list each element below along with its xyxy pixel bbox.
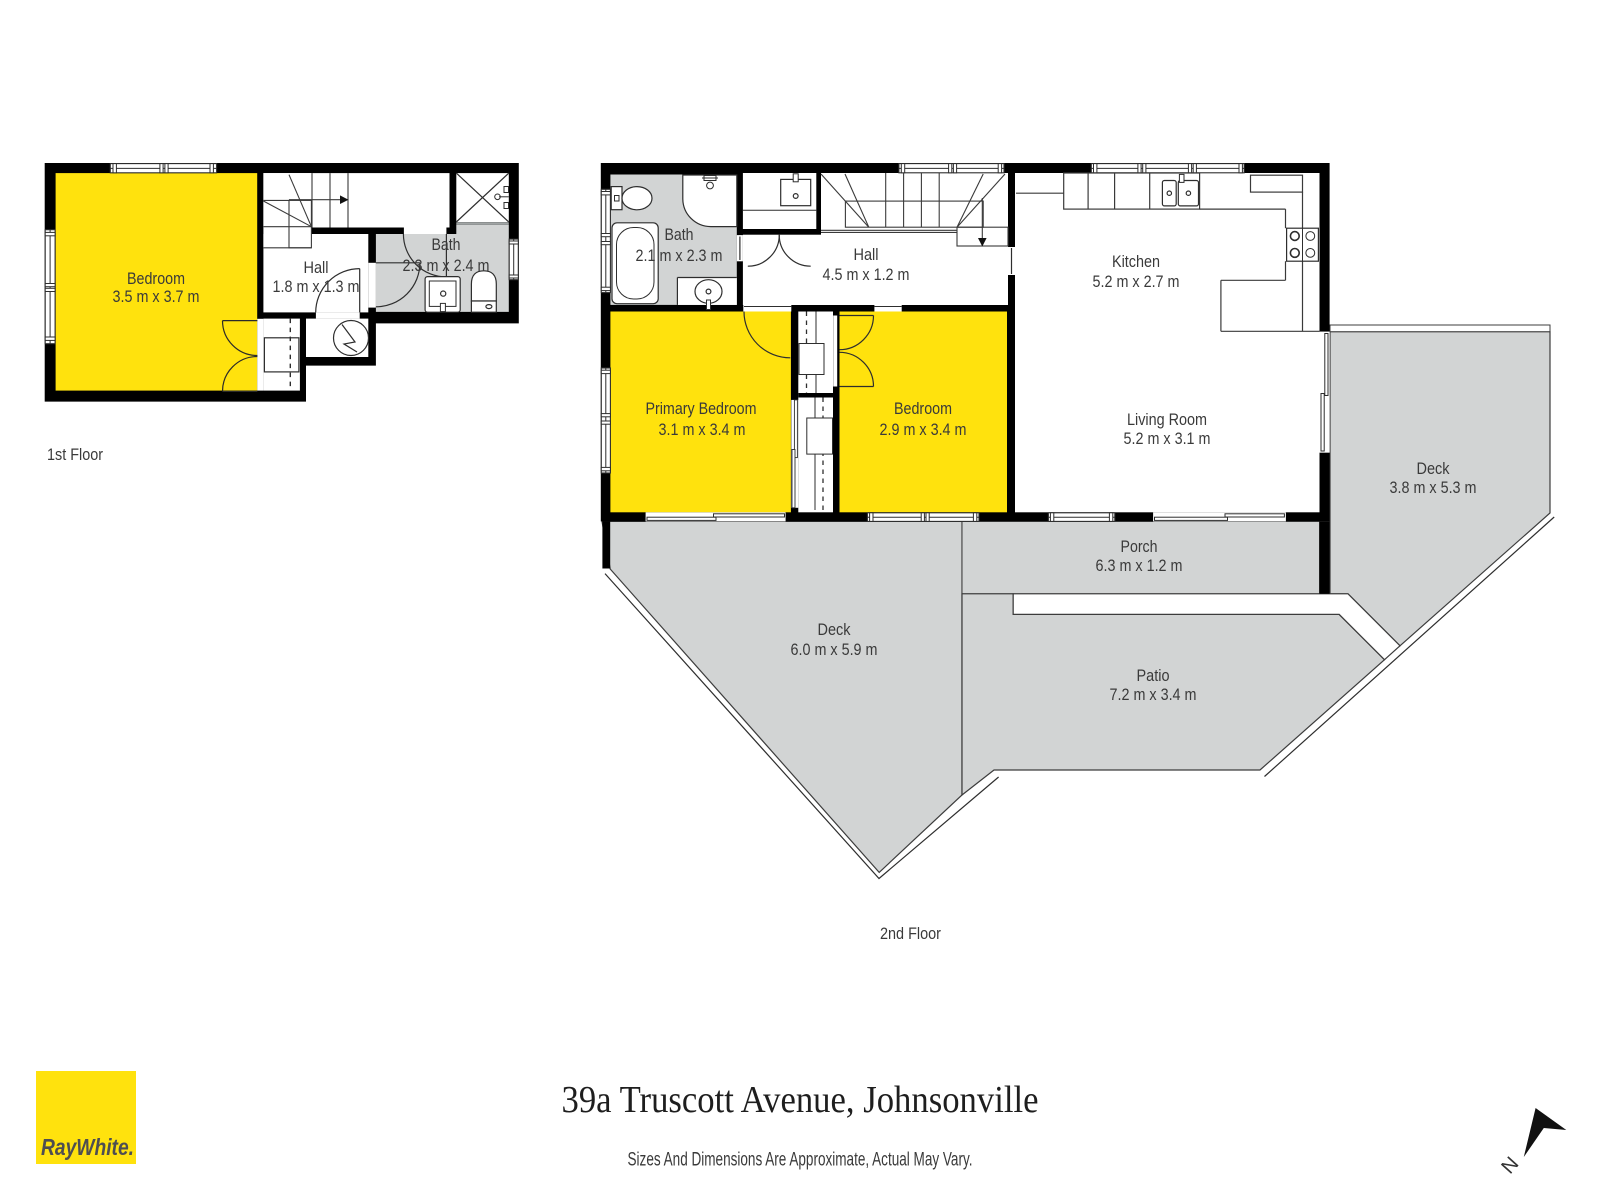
svg-text:2.1 m x 2.3 m: 2.1 m x 2.3 m (636, 246, 723, 265)
svg-text:Sizes And Dimensions Are Appro: Sizes And Dimensions Are Approximate, Ac… (628, 1150, 973, 1171)
svg-text:Living Room: Living Room (1127, 410, 1207, 429)
svg-text:Patio: Patio (1137, 666, 1170, 685)
svg-text:6.0 m x 5.9 m: 6.0 m x 5.9 m (791, 640, 878, 659)
svg-text:5.2 m x 2.7 m: 5.2 m x 2.7 m (1093, 272, 1180, 291)
svg-text:Deck: Deck (1417, 459, 1450, 478)
svg-text:Kitchen: Kitchen (1112, 252, 1160, 271)
svg-text:5.2 m x 3.1 m: 5.2 m x 3.1 m (1124, 429, 1211, 448)
svg-text:2.9 m x 3.4 m: 2.9 m x 3.4 m (880, 420, 967, 439)
svg-text:3.5 m x 3.7 m: 3.5 m x 3.7 m (113, 287, 200, 306)
svg-text:Hall: Hall (854, 245, 879, 264)
svg-text:Primary Bedroom: Primary Bedroom (646, 399, 757, 418)
svg-text:RayWhite.: RayWhite. (41, 1134, 134, 1160)
svg-text:Bath: Bath (665, 225, 694, 244)
svg-text:3.1 m x 3.4 m: 3.1 m x 3.4 m (659, 420, 746, 439)
svg-text:6.3 m x 1.2 m: 6.3 m x 1.2 m (1096, 556, 1183, 575)
svg-text:Bedroom: Bedroom (127, 269, 185, 288)
svg-text:Bath: Bath (432, 235, 461, 254)
svg-text:2.3 m x 2.4 m: 2.3 m x 2.4 m (403, 256, 490, 275)
svg-text:39a Truscott Avenue, Johnsonvi: 39a Truscott Avenue, Johnsonville (562, 1079, 1039, 1121)
svg-text:Bedroom: Bedroom (894, 399, 952, 418)
svg-text:2nd Floor: 2nd Floor (880, 925, 941, 943)
svg-text:Deck: Deck (818, 620, 851, 639)
svg-text:4.5 m x 1.2 m: 4.5 m x 1.2 m (823, 265, 910, 284)
svg-text:Porch: Porch (1121, 537, 1158, 556)
svg-text:Hall: Hall (304, 258, 329, 277)
svg-text:1.8 m x 1.3 m: 1.8 m x 1.3 m (273, 277, 360, 296)
svg-text:1st Floor: 1st Floor (47, 446, 103, 464)
svg-text:7.2 m x 3.4 m: 7.2 m x 3.4 m (1110, 685, 1197, 704)
svg-text:N: N (1497, 1153, 1523, 1178)
svg-text:3.8 m x 5.3 m: 3.8 m x 5.3 m (1390, 478, 1477, 497)
